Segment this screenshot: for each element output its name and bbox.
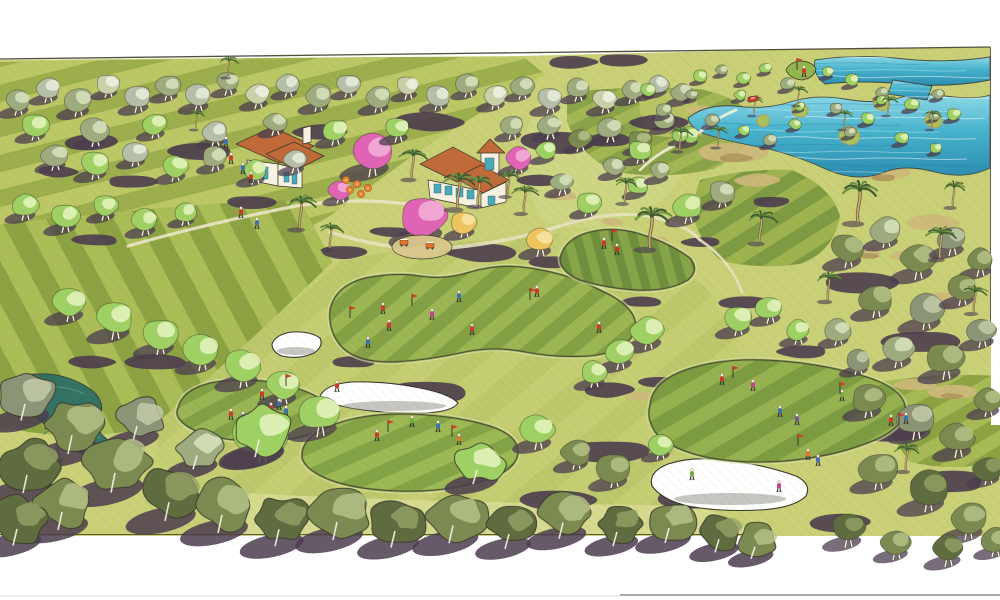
- golf-course-rendering: [0, 0, 1000, 600]
- patio-umbrella: [364, 184, 371, 191]
- golf-course-illustration-canvas: [0, 0, 1000, 600]
- clubhouse-patio: [392, 235, 452, 259]
- patio-umbrella: [353, 180, 360, 187]
- patio-umbrella: [357, 190, 364, 197]
- patio-umbrella: [346, 186, 353, 193]
- patio-umbrella: [342, 176, 349, 183]
